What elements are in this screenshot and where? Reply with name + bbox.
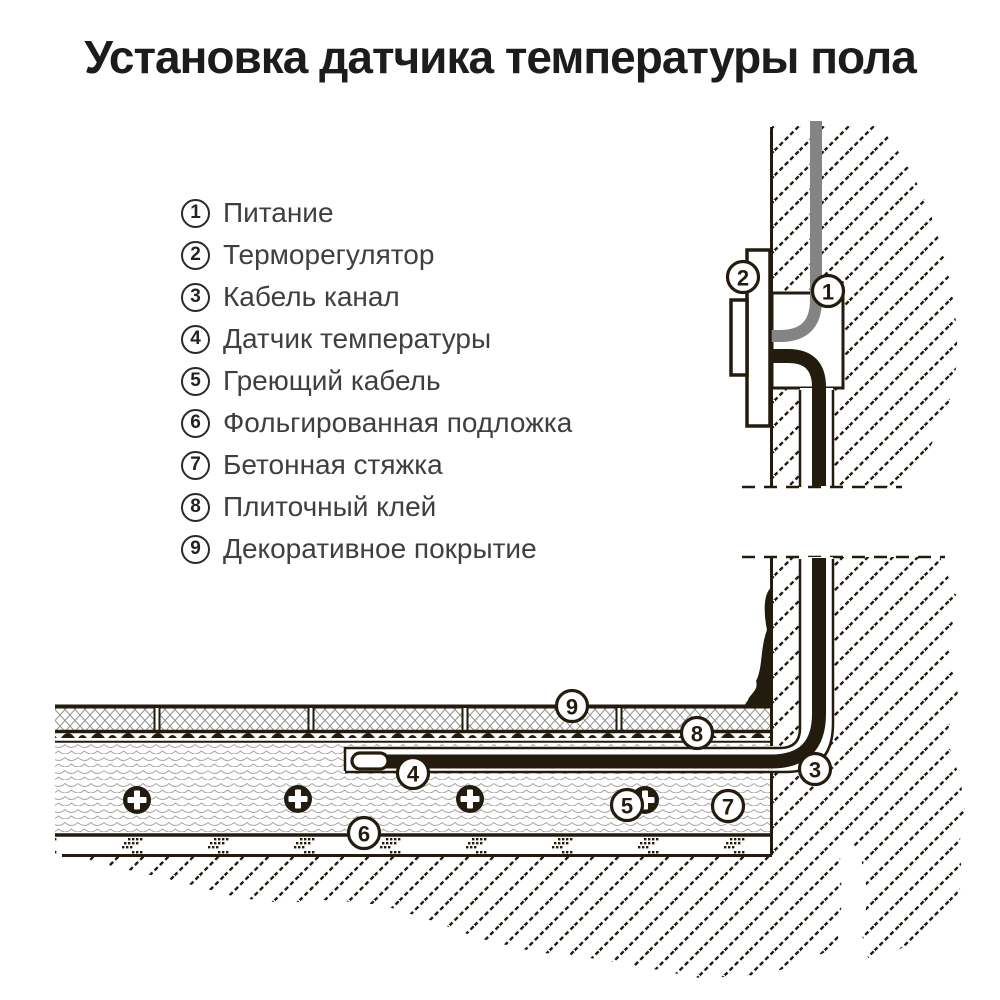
callout-number: 5 xyxy=(621,794,633,819)
callout-number: 9 xyxy=(566,695,578,720)
heating-cable-cross xyxy=(284,785,312,813)
callout-number: 7 xyxy=(722,795,734,820)
callout-2: 2 xyxy=(728,262,759,293)
adhesive-layer xyxy=(55,732,772,742)
upper-wall-section xyxy=(731,121,958,487)
callout-number: 6 xyxy=(358,822,370,847)
callout-number: 1 xyxy=(822,280,834,305)
callout-number: 4 xyxy=(407,762,420,787)
tile-layer xyxy=(55,707,772,732)
callout-9: 9 xyxy=(557,691,588,722)
callout-1: 1 xyxy=(813,276,844,307)
callout-3: 3 xyxy=(800,754,831,785)
callout-number: 3 xyxy=(809,758,821,783)
wall-break xyxy=(742,487,945,557)
temperature-sensor-bulb xyxy=(352,753,388,769)
callout-number: 8 xyxy=(691,722,703,747)
installation-cross-section-diagram: 1 2 3 4 5 6 7 xyxy=(0,0,1000,1000)
floor-sensor-installation-page: Установка датчика температуры пола 1 Пит… xyxy=(0,0,1000,1000)
wall-sealant-blob xyxy=(744,587,772,706)
callout-4: 4 xyxy=(398,758,429,789)
callout-5: 5 xyxy=(612,790,643,821)
heating-cable-cross xyxy=(456,785,484,813)
callout-8: 8 xyxy=(682,718,713,749)
callout-6: 6 xyxy=(349,818,380,849)
heating-cable-cross xyxy=(123,786,151,814)
callout-7: 7 xyxy=(713,791,744,822)
foil-underlay-layer xyxy=(55,838,772,856)
callout-number: 2 xyxy=(737,266,749,291)
